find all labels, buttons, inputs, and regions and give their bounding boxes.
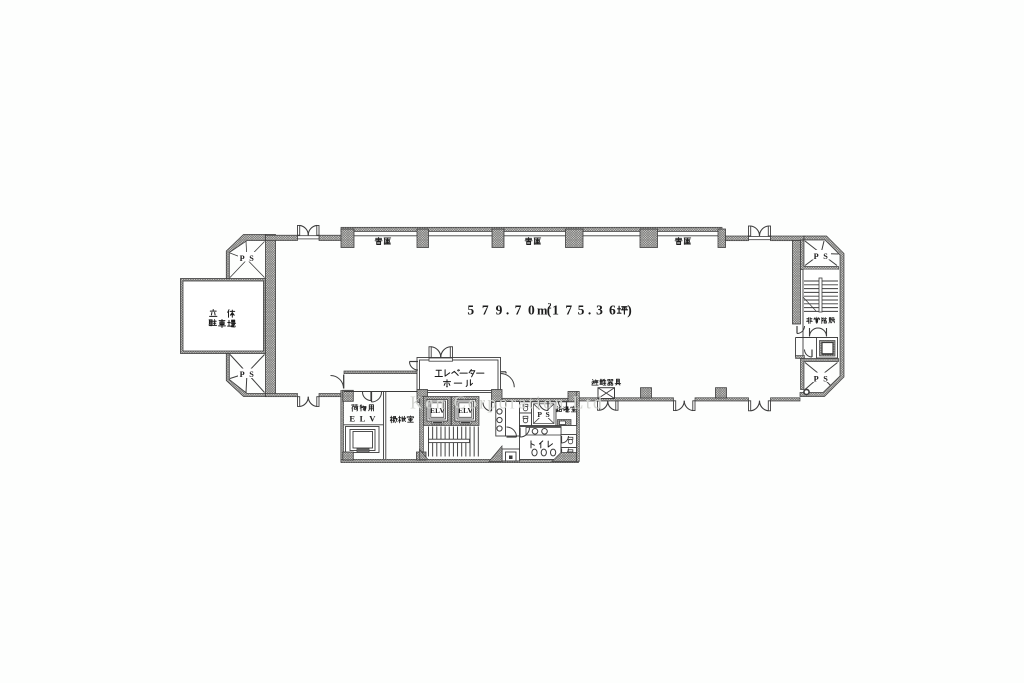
svg-text:.: . — [506, 303, 509, 318]
svg-text:P S: P S — [240, 370, 256, 379]
svg-text:P S: P S — [814, 252, 830, 261]
svg-text:9: 9 — [496, 303, 503, 318]
svg-text:6: 6 — [609, 303, 616, 318]
svg-text:7: 7 — [515, 303, 522, 318]
svg-text:5: 5 — [578, 303, 585, 318]
svg-text:.: . — [588, 303, 591, 318]
svg-text:5: 5 — [467, 303, 474, 318]
svg-text:0: 0 — [528, 303, 535, 318]
svg-text:3: 3 — [596, 303, 603, 318]
svg-text:7: 7 — [482, 303, 489, 318]
svg-text:P S: P S — [814, 375, 830, 384]
svg-text:P S: P S — [240, 254, 256, 263]
svg-text:m: m — [537, 304, 548, 318]
svg-text:E L V: E L V — [349, 414, 376, 424]
svg-text:7: 7 — [565, 303, 572, 318]
svg-text:Ken Corporation Ltd: Ken Corporation Ltd — [410, 393, 602, 413]
svg-text:2: 2 — [548, 302, 552, 311]
svg-text:1: 1 — [552, 303, 559, 318]
